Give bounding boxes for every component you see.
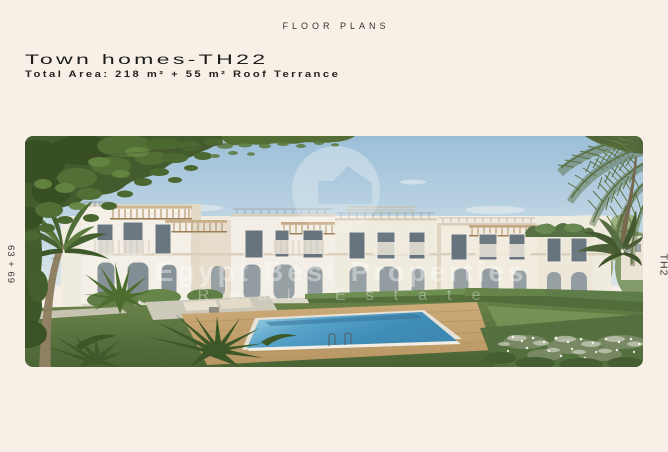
svg-text:Egypt Best Properties: Egypt Best Properties (155, 256, 527, 287)
svg-text:Real Estate: Real Estate (198, 287, 501, 304)
